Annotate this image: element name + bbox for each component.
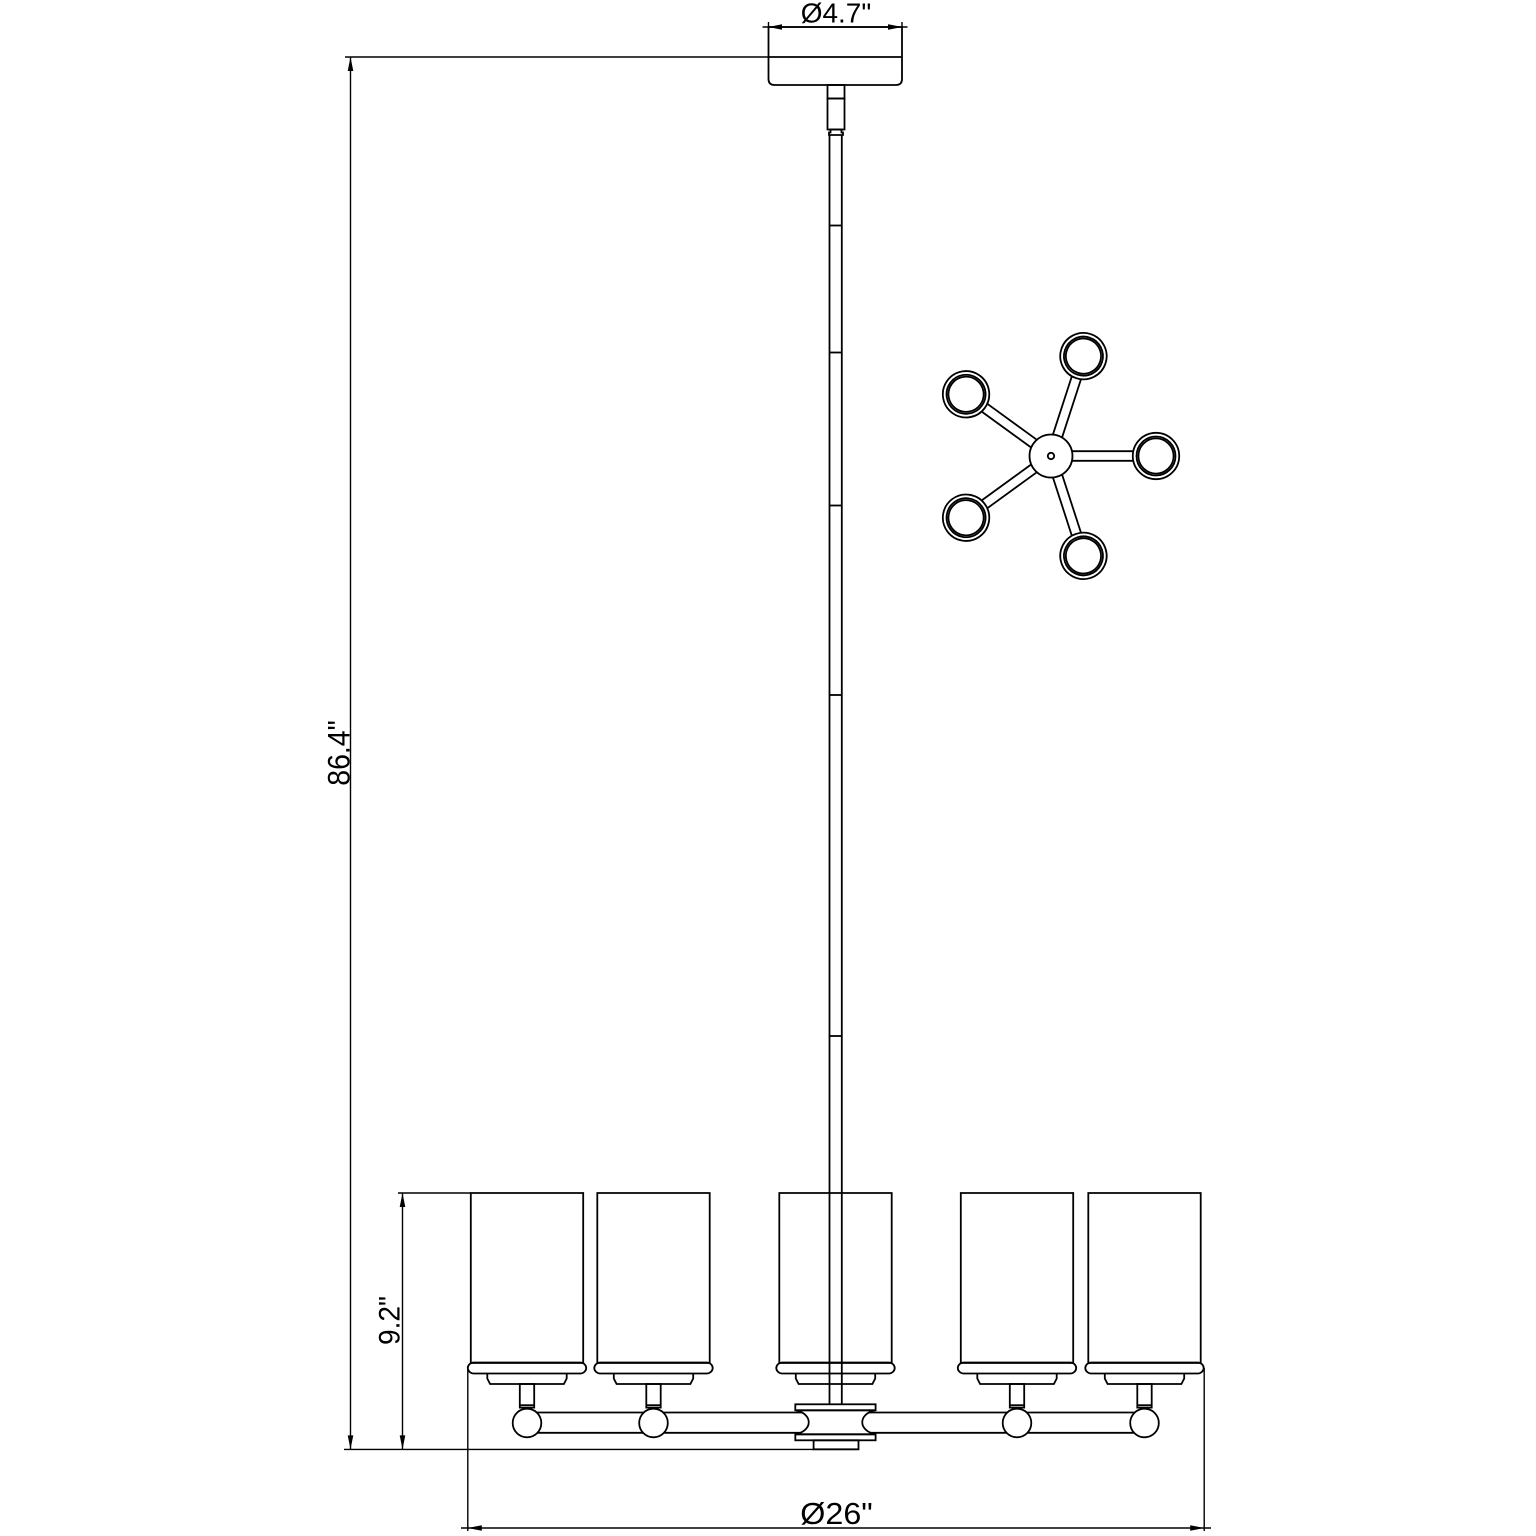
svg-text:Ø4.7": Ø4.7"	[801, 0, 872, 29]
svg-text:86.4": 86.4"	[321, 720, 357, 786]
svg-text:9.2": 9.2"	[374, 1296, 407, 1345]
svg-text:Ø26": Ø26"	[800, 1496, 873, 1531]
